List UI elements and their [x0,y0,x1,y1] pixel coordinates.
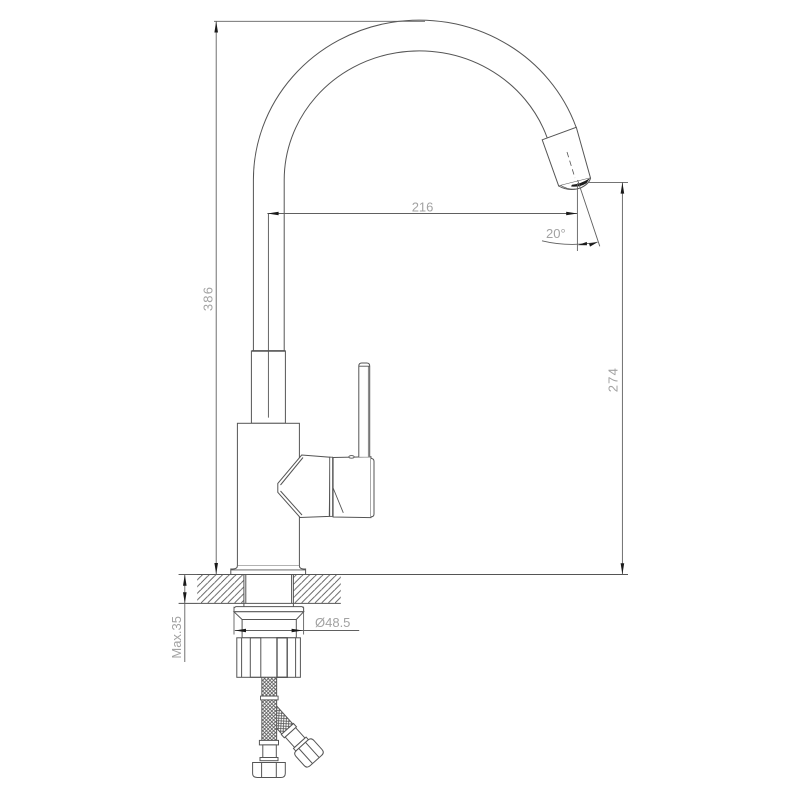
svg-text:216: 216 [412,199,434,214]
svg-text:386: 386 [201,286,216,311]
svg-text:20°: 20° [546,226,566,241]
svg-text:Ø48.5: Ø48.5 [315,615,350,630]
svg-text:274: 274 [606,367,621,392]
svg-text:Max.35: Max.35 [169,616,184,659]
